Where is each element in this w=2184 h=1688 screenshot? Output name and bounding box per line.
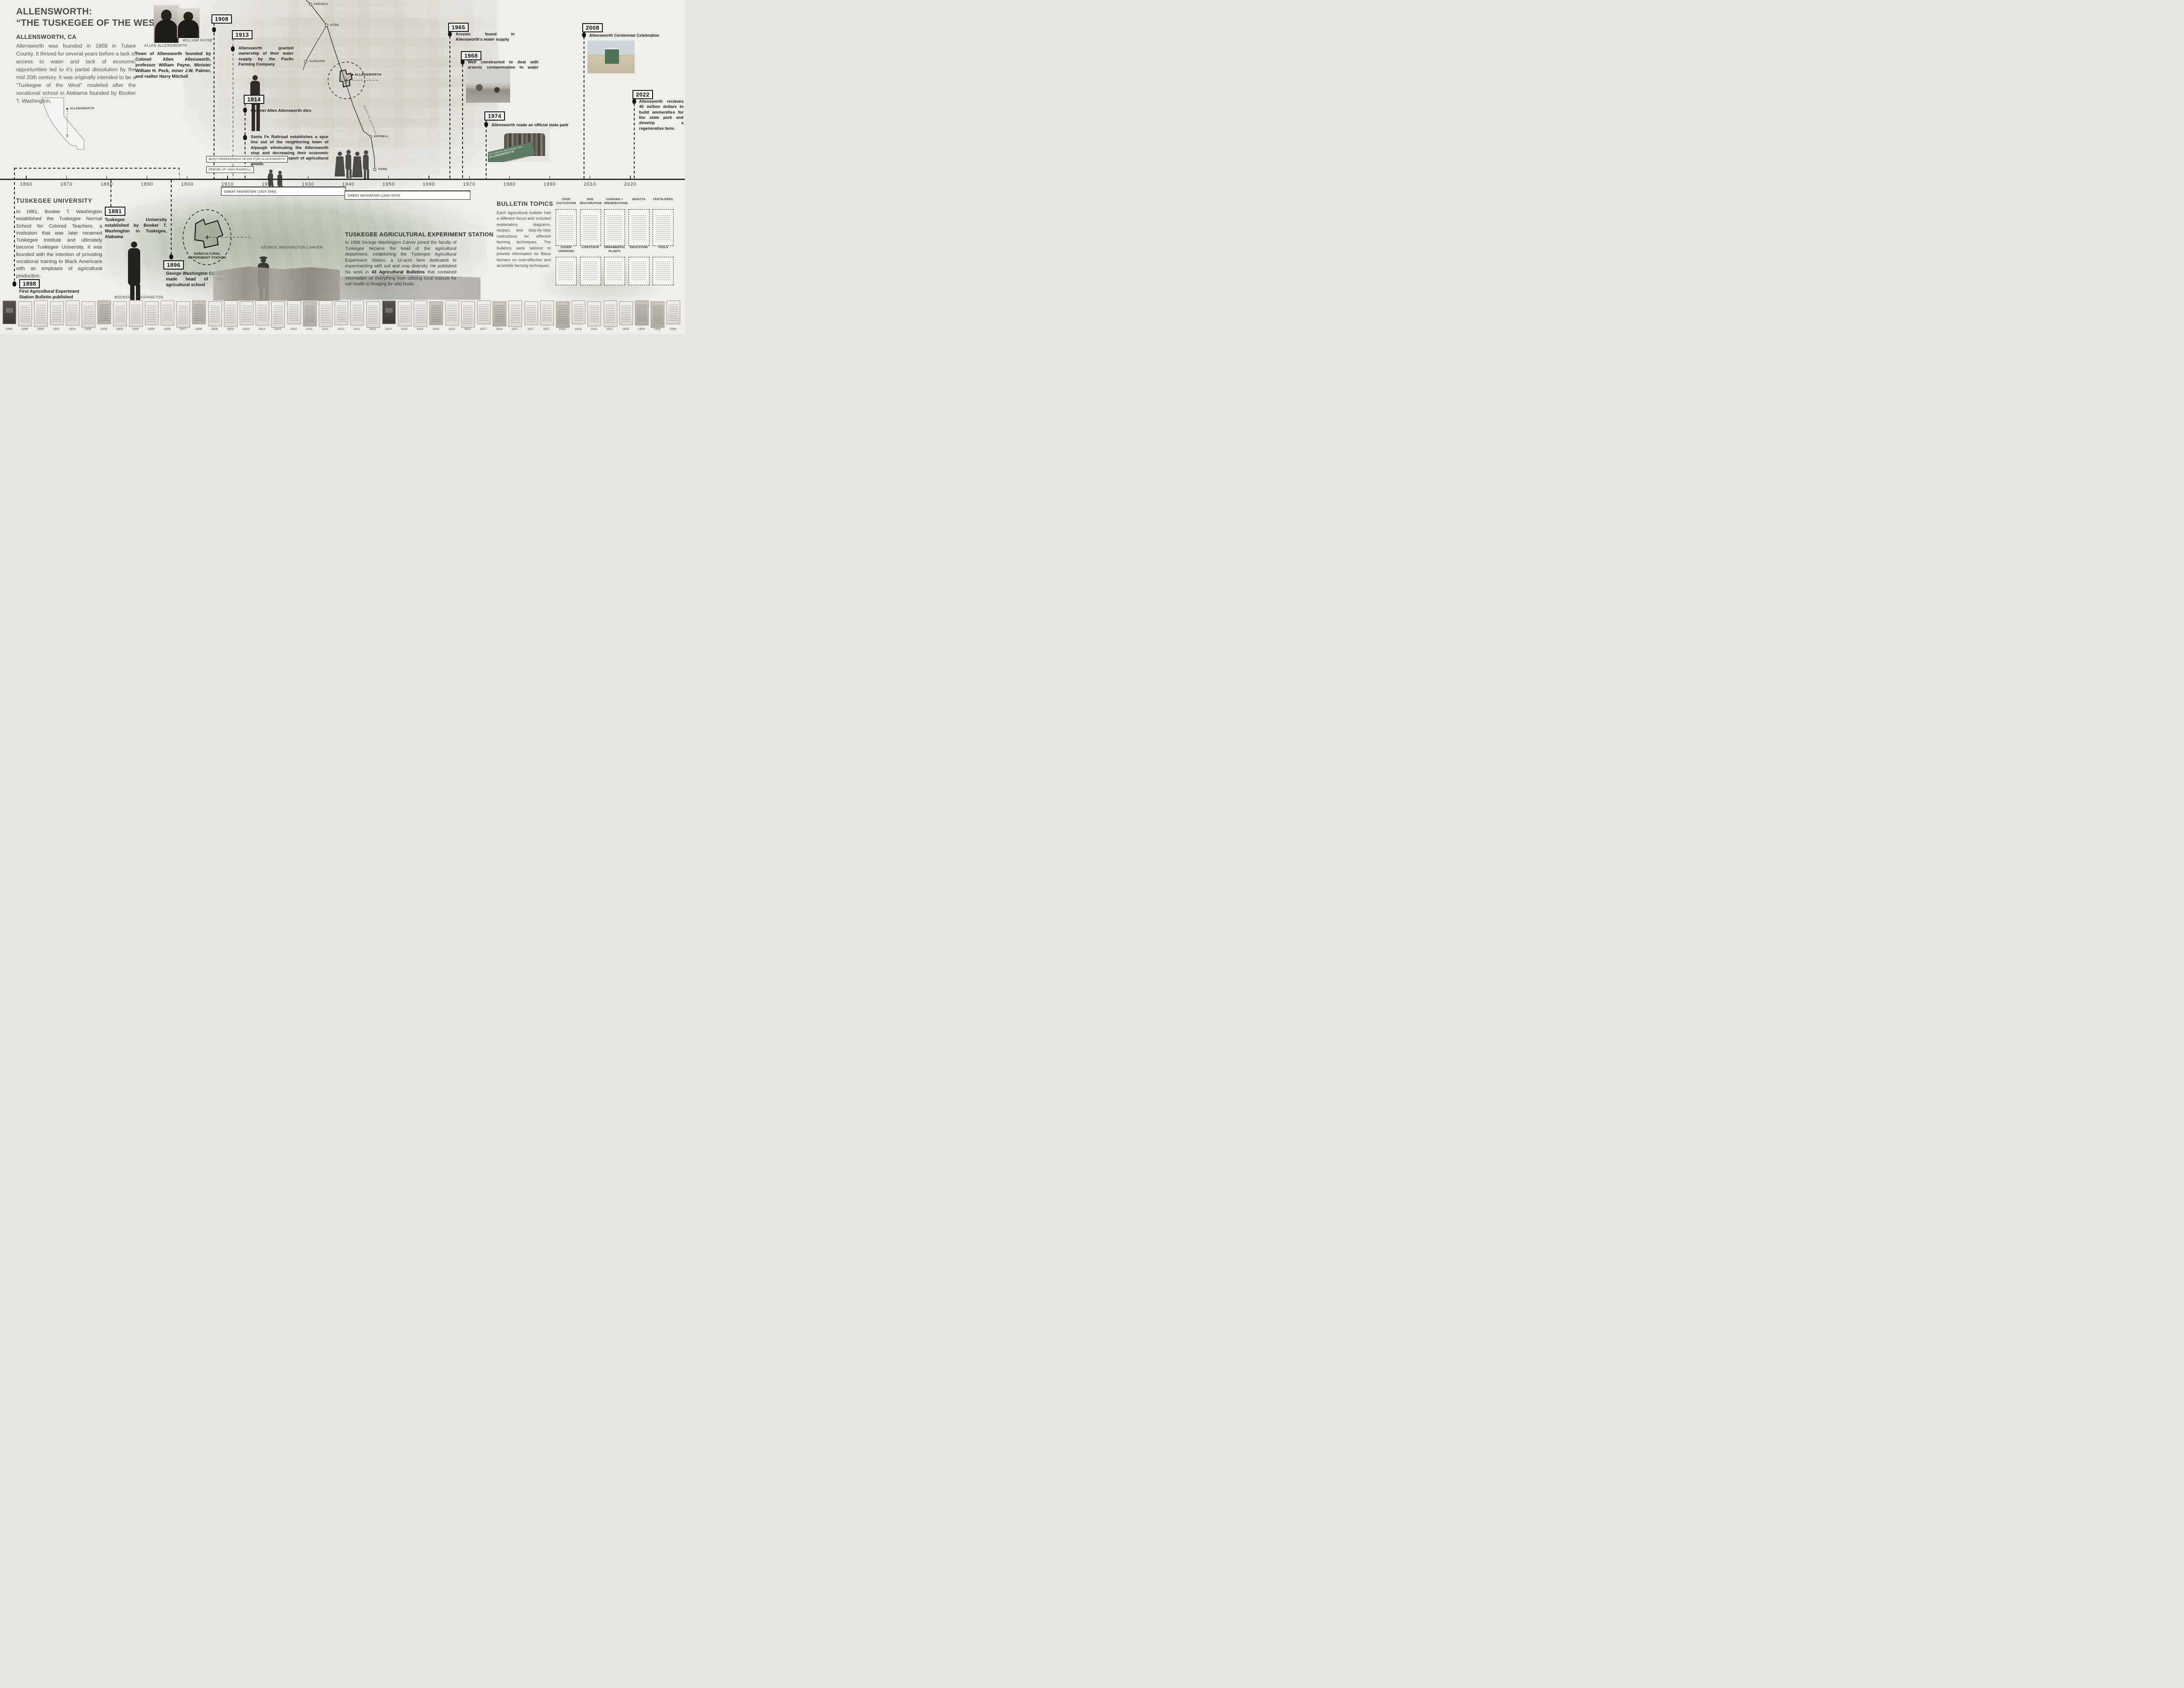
station-paragraph: In 1896 George Washington Carver joined … [345,240,456,287]
bulletin-topic-label: COVER CROPPING [556,246,577,254]
state-map-allensworth-label: ALLENSWORTH [70,107,94,110]
bulletin-topics-heading: BULLETIN TOPICS [497,201,553,207]
event-2008-photo [587,41,635,73]
axis-year-label: 1980 [503,182,515,187]
bulletin-cover [319,301,332,327]
axis-tick [147,176,147,179]
axis-tick [429,176,429,179]
bulletin-cover-year: 1905 [85,328,92,331]
migrant-figures-family [335,150,369,179]
william-payne-caption: WILLIAM PAYNE [183,38,213,42]
event-1914-bullet [243,107,247,113]
axis-year-label: 1860 [20,182,32,187]
event-1968-bullet [461,59,465,65]
axis-year-label: 1940 [342,182,354,187]
bulletin-cover-year: 1915 [401,328,408,331]
bulletin-cover [604,301,617,327]
booker-t-washington-caption: BOOKER T. WASHINGTON [114,295,163,299]
event-1898-connector-right [179,168,180,180]
bulletin-cover [240,301,253,325]
event-1965-yearbox: 1965 [448,23,469,32]
bulletin-cover [176,301,190,328]
bulletin-topic-thumbnail [629,257,650,285]
bulletin-cover-year: 1910 [259,328,266,331]
high-rainfall-box: PERIOD OF HIGH RAINFALL [206,166,254,173]
bulletin-cover [540,301,554,325]
bulletin-cover-year: 1898 [6,328,13,331]
map-label-pond: POND [378,168,387,171]
event-2008-yearbox: 2008 [582,23,603,32]
event-1898-connector-horizontal [14,168,180,169]
event-2022-text: Allensworth recieves 40 million dollars … [639,99,684,131]
map-label-kernell: KERNELL [374,135,389,138]
bulletin-cover-year: 1901 [53,328,60,331]
event-1965-bullet [448,31,452,37]
bulletin-cover-year: 1917 [543,328,550,331]
california-allensworth-dot [66,108,68,110]
intro-paragraph: Allensworth was founded in 1908 in Tular… [16,42,136,105]
bulletin-cover-year: 1944 [670,328,677,331]
allen-allensworth-photo [154,5,179,43]
bulletin-cover-year: 1922 [591,328,598,331]
bulletin-cover-year: 1899 [37,328,44,331]
bulletin-cover [461,301,475,328]
bulletin-cover-year: 1912 [369,328,376,331]
bulletin-cover-year: 1908 [195,328,202,331]
bulletin-cover-year: 1917 [527,328,534,331]
event-1968-line [462,60,463,179]
event-1974-text: Allensworth made an official state park [491,123,568,128]
event-1898-bullet [13,281,17,287]
bulletin-cover [50,301,64,325]
bulletin-topic-label: TOOLS [653,246,674,250]
bulletin-cover-year: 1906 [132,328,139,331]
bulletin-cover-year: 1911 [322,328,328,331]
bulletin-cover-year: 1910 [274,328,281,331]
event-1896-bullet [169,254,173,259]
bulletin-topic-thumbnail [629,209,650,246]
bulletin-cover [619,301,633,325]
bulletin-cover-year: 1905 [100,328,107,331]
event-2008-line [584,32,584,179]
event-1908-text: Town of Allensworth founded by Colonel A… [135,51,211,80]
axis-year-label: 1990 [543,182,556,187]
bulletin-cover-year: 1908 [211,328,218,331]
bulletin-topic-label: FERTILIZERS [653,198,674,202]
allensworth-town-boundary [340,70,352,87]
bulletin-cover-year: 1907 [180,328,187,331]
station-dot-kernell [370,136,372,138]
bulletin-cover [208,301,222,326]
page-title-line1: ALLENSWORTH: [16,6,92,17]
event-1896-yearbox: 1896 [163,260,184,270]
axis-tick [469,176,470,179]
bulletin-cover-year: 1927 [606,328,613,331]
event-1914-yearbox: 1914 [244,95,264,104]
bulletin-cover [303,301,317,326]
bulletin-cover [335,301,348,325]
axis-year-label: 1920 [262,182,274,187]
event-1908-bullet [212,27,216,32]
bulletin-cover [145,301,159,325]
bulletin-cover [635,301,649,325]
bulletin-cover [651,301,664,328]
bulletin-cover [366,301,380,328]
event-1898-connector-left [14,168,15,284]
axis-tick [348,176,349,179]
tuskegee-heading: TUSKEGEE UNIVERSITY [16,197,92,204]
axis-tick [187,176,187,179]
allensworth-label-dot [352,74,353,76]
event-1898-yearbox: 1898 [19,279,40,288]
bulletin-cover-year: 1915 [432,328,439,331]
axis-year-label: 1930 [302,182,314,187]
station-dot-pond [373,168,376,171]
bulletin-cover [224,301,238,327]
bulletin-cover [3,301,16,324]
axis-tick [549,176,550,179]
bulletin-topic-thumbnail [653,209,674,246]
bulletin-cover [382,301,396,324]
axis-year-label: 1970 [463,182,475,187]
bulletin-cover [414,301,427,327]
event-1881-yearbox: 1881 [105,207,125,216]
event-1974-photo: Visit California's Black Historic Town A… [488,128,550,162]
bulletin-topic-label: LIVESTOCK [580,246,601,250]
bulletin-cover-year: 1912 [338,328,345,331]
event-2008-text: Allensworth Centennial Celebration [589,33,659,38]
bulletin-cover [556,301,570,328]
event-1914-text: Colonel Allen Allensworth dies [251,108,311,113]
map-label-stoil: STOIL [330,24,340,27]
event-railspur-bullet [243,135,247,140]
allen-allensworth-caption: ALLEN ALLENSWORTH [144,44,187,48]
bulletin-cover-year: 1936 [654,328,661,331]
event-1908-yearbox: 1908 [211,14,232,24]
bulletin-cover-year: 1909 [227,328,234,331]
station-dot-alpaugh [304,60,307,63]
bulletin-topic-thumbnail [556,257,577,285]
axis-year-label: 1950 [383,182,395,187]
bulletin-cover [113,301,127,326]
axis-tick [26,176,26,179]
bulletin-topic-label: SOIL RESTORATION [580,198,601,206]
event-1974-yearbox: 1974 [484,111,505,121]
bulletin-cover-year: 1917 [480,328,487,331]
booker-t-washington-figure [128,242,140,300]
event-1968-photo [466,69,510,103]
event-2022-line [634,99,635,179]
bulletin-cover [129,301,143,327]
bulletin-cover [256,301,269,325]
station-paragraph-bold: 43 Agricultural Bulletins [372,270,425,275]
bulletin-topic-thumbnail [604,209,625,246]
axis-year-label: 2020 [624,182,636,187]
bulletin-topic-thumbnail [653,257,674,285]
bulletin-cover-year: 1908 [164,328,171,331]
bulletin-cover-year: 1915 [417,328,424,331]
bulletin-cover [161,301,174,325]
station-dot-stoil [325,24,328,27]
bulletin-cover-year: 1918 [575,328,582,331]
axis-tick [227,176,228,179]
station-heading: TUSKEGEE AGRICULTURAL EXPERIMENT STATION [345,231,494,238]
bulletin-cover [525,301,538,325]
station-dot-angiola [309,3,312,6]
tuskegee-campus-photo-strip [213,266,340,301]
george-washington-carver-caption: GEORGE WASHINGTON CARVER [261,246,323,249]
map-label-alpaugh: ALPAUGH [309,60,325,63]
prosperous-years-box: MOST PROSPEROUS YEARS FOR ALLENSWORTH [206,156,288,163]
event-1881-text: Tuskegee University established by Booke… [105,217,167,240]
bulletin-cover [66,301,79,325]
great-migration-1-box: GREAT MIGRATION (1910-1940) [221,187,346,196]
axis-year-label: 1870 [60,182,73,187]
event-1968-yearbox: 1968 [461,51,481,60]
axis-tick [509,176,510,179]
bulletin-cover-year: 1935 [622,328,629,331]
bulletin-cover-year: 1910 [243,328,250,331]
bulletin-cover [398,301,411,326]
bulletin-cover-year: 1917 [511,328,518,331]
bulletin-cover-year: 1910 [290,328,297,331]
experiment-station-map-label: AGRICULTURAL EXPERIMENT STATION [188,252,226,260]
event-1974-line [486,120,487,179]
bulletin-topic-thumbnail [580,257,601,285]
bulletin-topics-paragraph: Each agricultural bulletin had a differe… [497,210,551,269]
event-1965-text: Arsenic found in Allensworth's water sup… [456,32,515,43]
bulletin-cover [350,301,364,325]
event-1896-line [171,180,172,256]
bulletin-cover [429,301,443,325]
bulletin-cover [493,301,506,326]
william-payne-photo [177,8,200,38]
bulletin-cover-year: 1906 [148,328,155,331]
axis-tick [268,176,268,179]
map-label-angiola: ANGIOLA [314,3,328,6]
bulletin-cover [18,301,32,326]
bulletin-cover-year: 1911 [306,328,313,331]
axis-tick [388,176,389,179]
bulletin-topic-label: INSECTS [629,198,650,202]
bulletin-cover [508,301,522,327]
california-outline [42,98,84,149]
axis-year-label: 1910 [221,182,234,187]
event-1965-line [449,31,450,179]
bulletin-cover-year: 1898 [21,328,28,331]
event-1898-text: First Agricultural Experiment Station Bu… [19,289,93,300]
bulletin-cover [667,301,680,324]
axis-year-label: 1890 [141,182,153,187]
bulletin-topic-label: COOKING + PRESERVATION [604,198,625,206]
page-title-line2: “THE TUSKEGEE OF THE WEST” [16,17,165,29]
map-label-allensworth: ALLENSWORTH [355,73,381,76]
axis-tick [590,176,590,179]
event-1881-line [111,180,111,207]
bulletin-cover-year: 1913 [385,328,392,331]
bulletin-cover-year: 1918 [559,328,566,331]
bulletin-topic-thumbnail [604,257,625,285]
bulletin-cover-year: 1903 [69,328,76,331]
bulletin-cover [271,301,285,328]
axis-tick [308,176,308,179]
bulletin-cover [287,301,301,324]
bulletin-cover [97,301,111,324]
event-1913-bullet [231,46,235,52]
bulletin-cover [192,301,206,324]
bulletin-cover-year: 1936 [638,328,645,331]
location-heading: ALLENSWORTH, CA [16,34,76,40]
experiment-station-plot [195,219,223,248]
bulletin-cover [477,301,491,324]
bulletin-topic-thumbnail [556,209,577,246]
event-1974-bullet [484,122,488,127]
bulletin-cover [572,301,585,324]
axis-year-label: 2010 [584,182,596,187]
bulletin-topic-label: CROP CULTIVATION [556,198,577,206]
axis-tick [630,176,630,179]
event-1913-text: Allensworth granted ownership of their w… [238,46,294,67]
infographic-canvas: ALLENSWORTH: “THE TUSKEGEE OF THE WEST” … [0,0,685,334]
bulletin-cover-year: 1916 [496,328,503,331]
event-2022-yearbox: 2022 [632,90,653,99]
event-2008-bullet [582,32,586,38]
axis-tick [66,176,67,179]
bulletin-topic-label: ORNAMENTAL PLANTS [604,246,625,254]
bulletin-topic-thumbnail [580,209,601,246]
event-1913-yearbox: 1913 [232,30,252,39]
axis-tick [107,176,107,179]
timeline-axis [0,179,685,180]
tuskegee-paragraph: In 1881, Booker T. Washington establishe… [16,208,102,280]
bulletin-cover [34,301,48,327]
bulletin-cover [587,301,601,326]
bulletin-cover [82,301,95,328]
bulletin-cover-year: 1912 [353,328,360,331]
axis-year-label: 1960 [423,182,435,187]
railroad-spur-line [303,25,327,70]
bulletin-cover-year: 1915 [448,328,455,331]
bulletin-cover [446,301,459,325]
bulletin-cover-year: 1906 [116,328,123,331]
event-2008-kiosk [605,48,619,64]
great-migration-2-box: GREAT MIGRATION (1940-1970) [345,190,470,200]
bulletin-cover-year: 1915 [464,328,471,331]
bulletin-topic-label: EDUCATION [629,246,650,250]
axis-year-label: 1900 [181,182,194,187]
event-2022-bullet [632,99,636,104]
